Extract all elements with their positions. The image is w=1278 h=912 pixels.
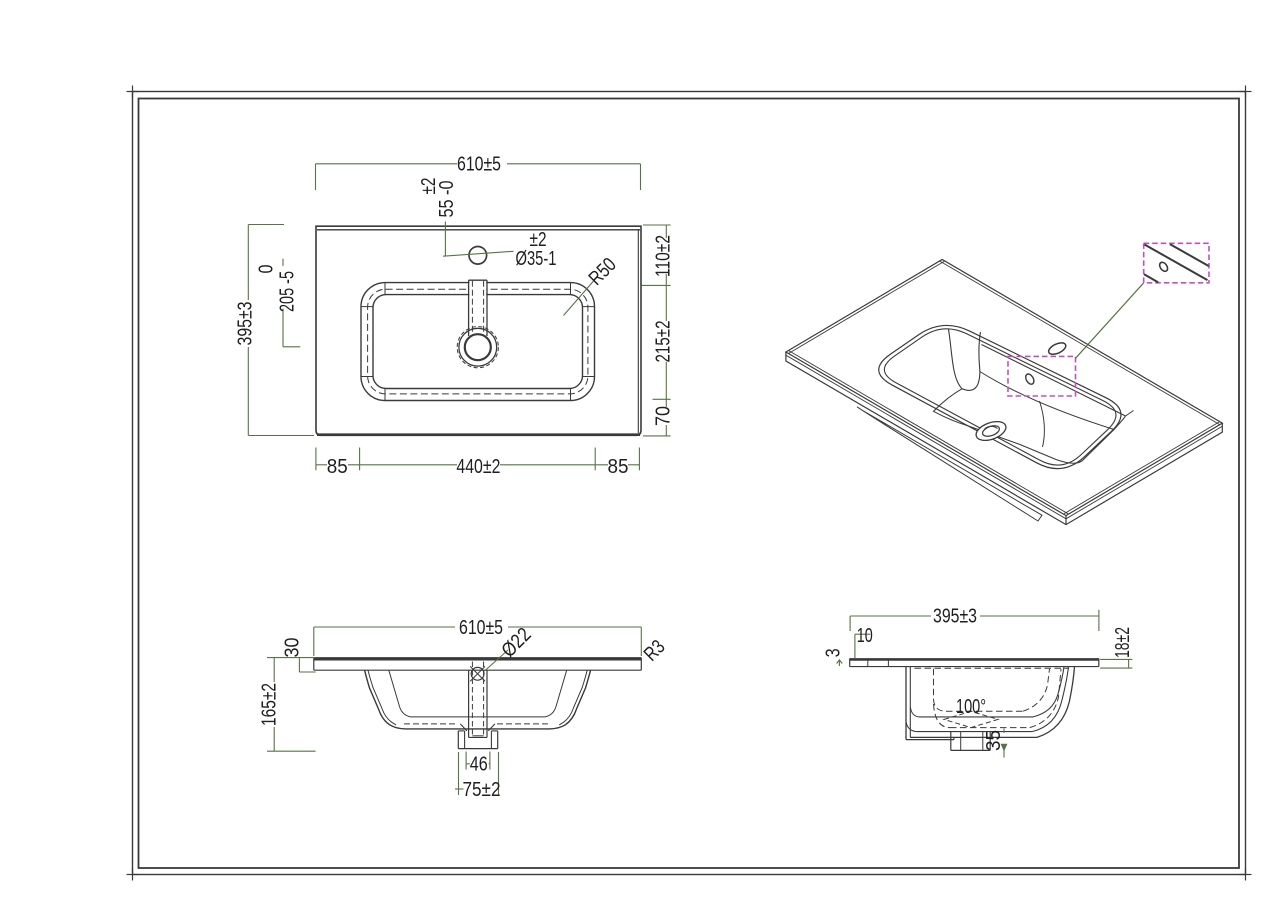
svg-text:85: 85: [327, 456, 348, 478]
svg-text:215±2: 215±2: [652, 321, 674, 363]
svg-text:85: 85: [608, 456, 629, 478]
svg-text:205 -5: 205 -5: [277, 271, 299, 312]
svg-text:395±3: 395±3: [933, 606, 977, 628]
svg-text:75±2: 75±2: [463, 779, 501, 801]
svg-text:55 -0: 55 -0: [436, 181, 458, 218]
svg-text:18±2: 18±2: [1112, 627, 1134, 658]
svg-text:30: 30: [282, 638, 304, 658]
svg-text:70: 70: [652, 406, 674, 426]
svg-text:10: 10: [857, 625, 873, 647]
svg-text:610±5: 610±5: [459, 617, 503, 639]
svg-text:610±5: 610±5: [457, 154, 501, 176]
svg-text:395±3: 395±3: [235, 302, 257, 346]
svg-text:3: 3: [822, 648, 844, 657]
svg-text:440±2: 440±2: [456, 456, 500, 478]
svg-text:110±2: 110±2: [652, 235, 674, 277]
svg-text:46: 46: [470, 754, 488, 776]
svg-text:100°: 100°: [956, 696, 986, 718]
svg-text:Ø35-1: Ø35-1: [516, 248, 557, 270]
svg-text:165±2: 165±2: [259, 683, 281, 726]
svg-text:0: 0: [256, 265, 278, 274]
svg-text:35: 35: [983, 730, 1005, 751]
